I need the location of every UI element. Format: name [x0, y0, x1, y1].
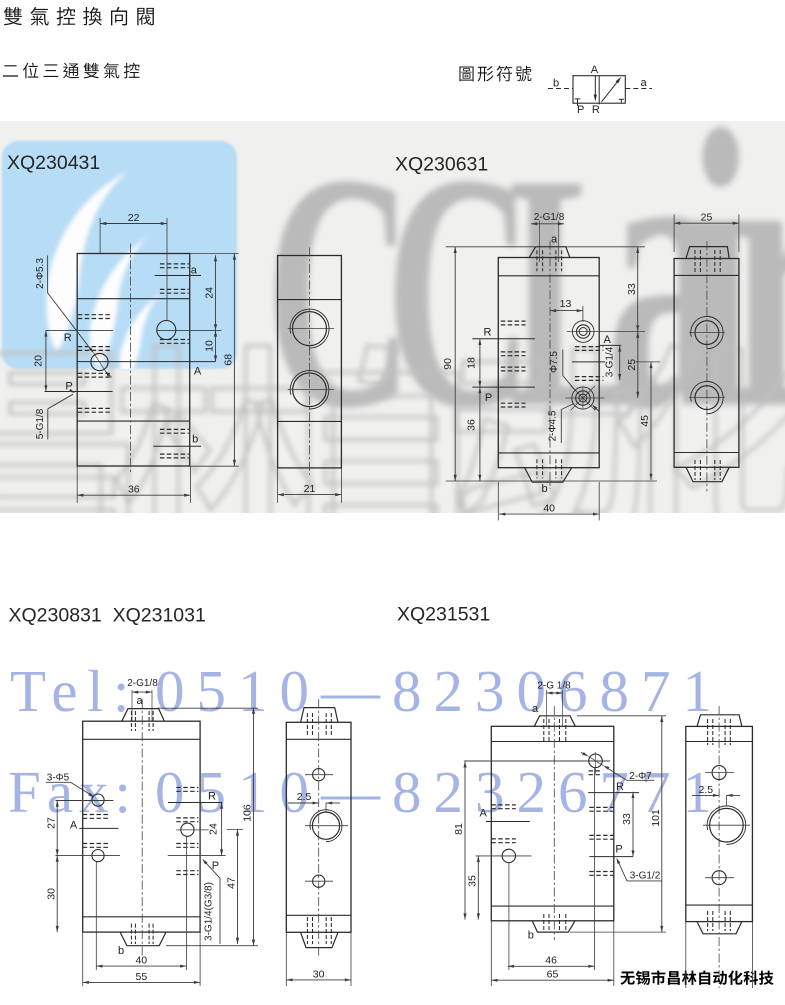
svg-text:2.5: 2.5 [698, 784, 713, 796]
svg-text:a: a [136, 695, 143, 707]
svg-text:24: 24 [208, 823, 220, 835]
svg-text:b: b [553, 78, 559, 90]
svg-text:25: 25 [626, 359, 638, 371]
svg-text:b: b [192, 433, 198, 445]
svg-text:33: 33 [626, 283, 638, 295]
svg-text:Fax:: Fax: [8, 759, 137, 825]
svg-text:10: 10 [204, 340, 216, 352]
svg-text:35: 35 [467, 875, 479, 887]
svg-text:30: 30 [45, 888, 57, 900]
svg-text:101: 101 [650, 809, 662, 827]
svg-text:a: a [532, 703, 539, 715]
svg-text:13: 13 [560, 298, 572, 310]
svg-text:18: 18 [465, 357, 477, 369]
svg-text:68: 68 [223, 354, 235, 366]
svg-text:Φ7.5: Φ7.5 [549, 351, 560, 373]
svg-text:b: b [118, 945, 124, 957]
svg-text:3-G1/4: 3-G1/4 [605, 346, 616, 377]
svg-text:Tel:: Tel: [10, 658, 139, 724]
svg-text:A: A [591, 64, 599, 76]
svg-text:106: 106 [242, 804, 254, 822]
svg-text:0510—82306871: 0510—82306871 [155, 658, 724, 724]
svg-text:XQ230431: XQ230431 [7, 152, 100, 174]
svg-text:b: b [528, 929, 534, 941]
svg-text:55: 55 [136, 971, 148, 983]
svg-text:R: R [592, 104, 600, 116]
svg-text:47: 47 [226, 877, 238, 889]
svg-text:2-Φ4.5: 2-Φ4.5 [548, 410, 559, 441]
svg-text:P: P [577, 104, 584, 116]
svg-text:2-G1/8: 2-G1/8 [127, 678, 158, 689]
svg-text:45: 45 [639, 415, 651, 427]
svg-text:20: 20 [33, 355, 45, 367]
svg-text:40: 40 [543, 503, 555, 515]
svg-text:2-G 1/8: 2-G 1/8 [537, 680, 571, 691]
svg-text:33: 33 [621, 813, 633, 825]
svg-text:P: P [485, 392, 492, 404]
svg-text:3-Φ5: 3-Φ5 [47, 772, 70, 783]
svg-text:2-Φ7: 2-Φ7 [629, 771, 652, 782]
svg-text:R: R [64, 332, 72, 344]
svg-text:22: 22 [128, 212, 140, 224]
svg-text:36: 36 [465, 419, 477, 431]
svg-text:XQ231531: XQ231531 [397, 604, 490, 626]
svg-text:30: 30 [313, 968, 325, 980]
svg-text:A: A [194, 365, 202, 377]
svg-text:0510—82326771: 0510—82326771 [155, 759, 724, 825]
svg-text:5-G1/8: 5-G1/8 [35, 408, 46, 439]
svg-text:3-G1/4(G3/8): 3-G1/4(G3/8) [204, 882, 215, 941]
svg-text:R: R [484, 326, 492, 338]
svg-text:2-Φ5.3: 2-Φ5.3 [35, 258, 46, 289]
svg-text:65: 65 [547, 969, 559, 981]
svg-text:24: 24 [204, 287, 216, 299]
svg-text:A: A [604, 334, 612, 346]
svg-text:P: P [615, 843, 622, 855]
svg-text:a: a [640, 77, 647, 89]
svg-text:r: r [728, 48, 785, 491]
svg-text:R: R [208, 791, 216, 803]
svg-text:XQ230631: XQ230631 [395, 154, 488, 176]
svg-text:XQ230831 XQ231031: XQ230831 XQ231031 [9, 605, 206, 627]
svg-text:81: 81 [453, 823, 465, 835]
svg-text:A: A [480, 807, 488, 819]
svg-text:27: 27 [45, 817, 57, 829]
svg-text:36: 36 [128, 484, 140, 496]
svg-text:a: a [191, 264, 198, 276]
svg-text:25: 25 [701, 212, 713, 224]
svg-text:46: 46 [545, 955, 557, 967]
svg-text:a: a [551, 233, 558, 245]
svg-text:2.5: 2.5 [297, 791, 312, 803]
svg-text:21: 21 [304, 483, 316, 495]
svg-text:40: 40 [135, 955, 147, 967]
svg-text:90: 90 [442, 358, 454, 370]
svg-text:3-G1/2: 3-G1/2 [630, 870, 661, 881]
svg-text:R: R [616, 781, 624, 793]
svg-text:b: b [541, 483, 547, 495]
svg-text:A: A [70, 819, 78, 831]
svg-text:2-G1/8: 2-G1/8 [534, 212, 565, 223]
